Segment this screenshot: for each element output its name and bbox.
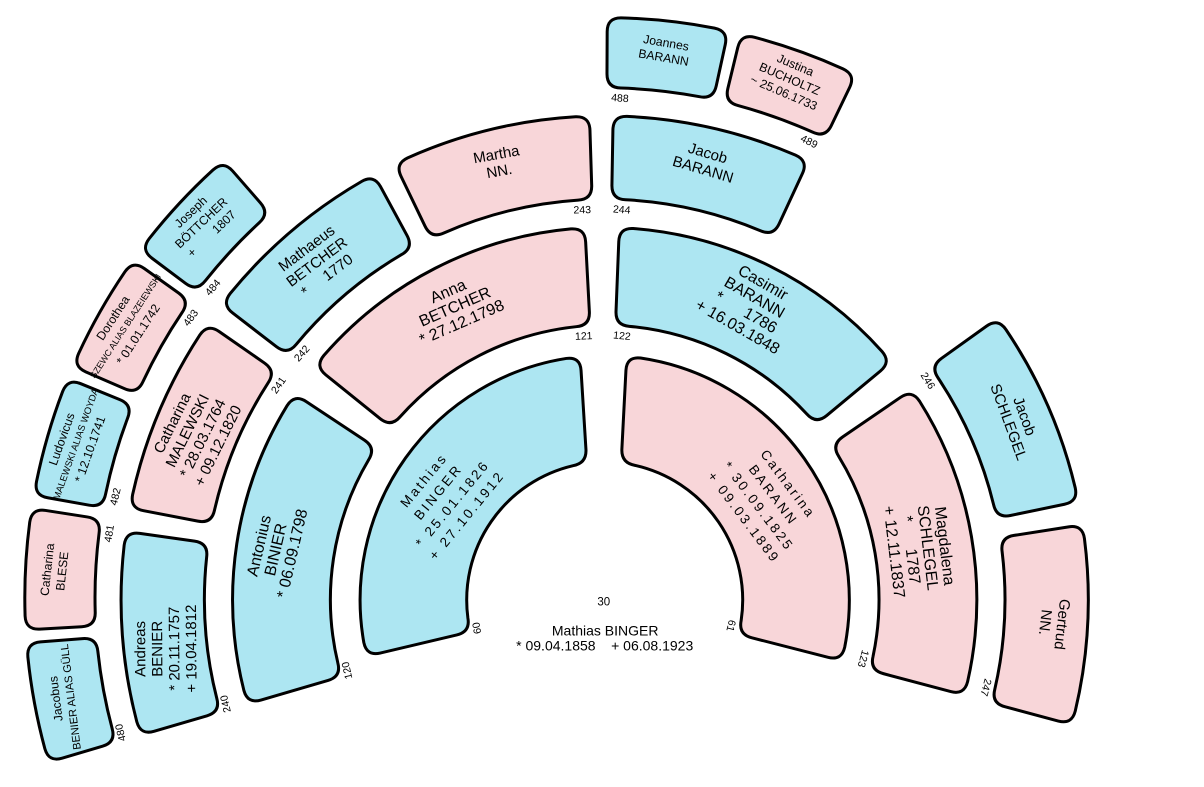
svg-text:Andreas: Andreas [132,621,149,677]
svg-text:* 20.11.1757: * 20.11.1757 [166,607,184,691]
svg-text:60: 60 [470,621,484,635]
svg-text:BENIER: BENIER [149,621,166,677]
svg-text:244: 244 [612,203,631,216]
svg-text:NN.: NN. [1035,609,1055,637]
svg-text:+ 19.04.1812: + 19.04.1812 [183,605,201,693]
svg-text:Mathias BINGER: Mathias BINGER [552,623,659,639]
svg-text:122: 122 [613,329,632,343]
svg-text:* 09.04.1858 + 06.08.1923: * 09.04.1858 + 06.08.1923 [516,638,693,654]
svg-text:243: 243 [573,204,591,216]
svg-text:121: 121 [575,330,593,343]
svg-text:488: 488 [611,92,629,105]
svg-text:30: 30 [597,597,610,609]
